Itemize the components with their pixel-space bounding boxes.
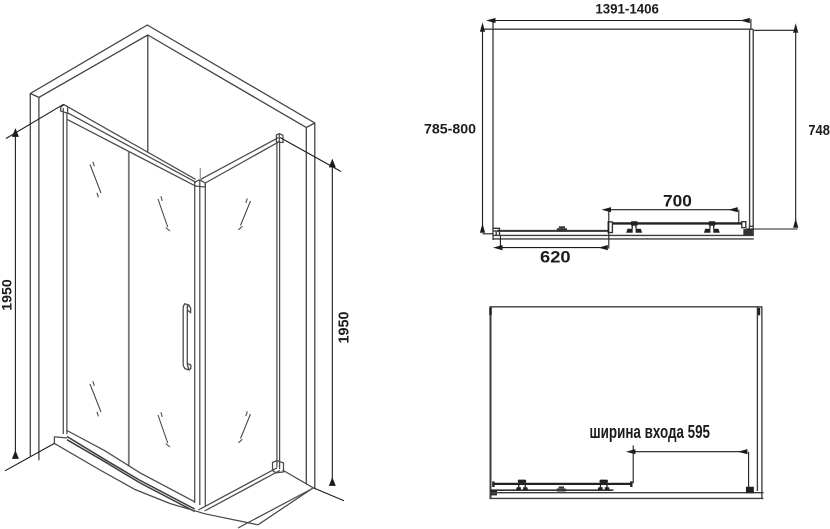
svg-text:1391-1406: 1391-1406 (595, 1, 659, 17)
svg-text:700: 700 (663, 191, 692, 210)
svg-text:785-800: 785-800 (424, 121, 476, 137)
svg-text:1950: 1950 (0, 279, 14, 311)
svg-text:ширина входа 595: ширина входа 595 (590, 422, 711, 442)
svg-text:748: 748 (808, 123, 830, 139)
svg-text:1950: 1950 (336, 312, 353, 344)
svg-text:620: 620 (540, 248, 571, 267)
